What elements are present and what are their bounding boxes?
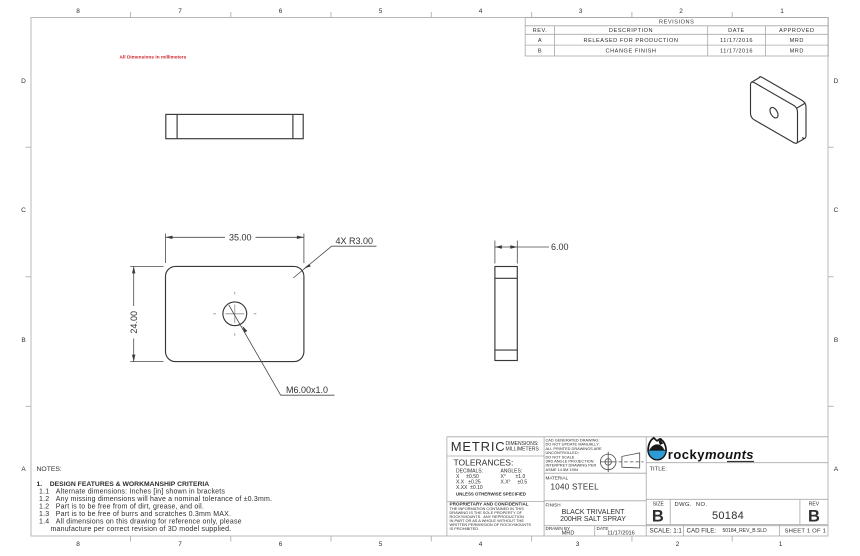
svg-text:A: A <box>21 466 26 473</box>
svg-text:REV.: REV. <box>533 28 548 34</box>
svg-text:50184_REV_B.SLD: 50184_REV_B.SLD <box>723 528 768 534</box>
svg-text:X.XX ±0.10: X.XX ±0.10 <box>456 485 483 491</box>
svg-text:METRIC: METRIC <box>451 439 506 454</box>
svg-text:4: 4 <box>479 8 483 15</box>
svg-text:1.3 Part is to be free of bu: 1.3 Part is to be free of burrs and scra… <box>39 511 231 518</box>
svg-text:REVISIONS: REVISIONS <box>659 20 694 26</box>
svg-text:DATE: DATE <box>728 28 745 34</box>
svg-text:DWG. NO.: DWG. NO. <box>675 502 708 508</box>
svg-text:3: 3 <box>576 541 580 548</box>
svg-text:RELEASED FOR PRODUCTION: RELEASED FOR PRODUCTION <box>583 38 678 44</box>
svg-text:5: 5 <box>379 541 383 548</box>
svg-text:24.00: 24.00 <box>129 311 139 334</box>
svg-text:1: 1 <box>780 8 784 15</box>
svg-text:2: 2 <box>679 8 683 15</box>
svg-text:ASME 14.5M 1994: ASME 14.5M 1994 <box>546 467 579 472</box>
svg-text:TOLERANCES:: TOLERANCES: <box>454 458 514 468</box>
svg-text:manufacture per correct revisi: manufacture per correct revision of 3D m… <box>51 526 232 533</box>
svg-text:MATERIAL: MATERIAL <box>546 476 569 481</box>
svg-text:7: 7 <box>178 8 182 15</box>
svg-text:MRD: MRD <box>562 531 575 537</box>
svg-text:D: D <box>21 78 26 85</box>
svg-text:A: A <box>538 38 542 44</box>
svg-text:B: B <box>21 337 25 344</box>
svg-text:4: 4 <box>479 541 483 548</box>
svg-text:1.1 Alternate dimensions: In: 1.1 Alternate dimensions: Inches [in] sh… <box>39 489 225 496</box>
svg-text:All Dimensions in millimeters: All Dimensions in millimeters <box>120 54 187 59</box>
svg-text:CHANGE FINISH: CHANGE FINISH <box>606 49 657 55</box>
svg-text:1.2 Any missing dimensions w: 1.2 Any missing dimensions will have a n… <box>39 496 272 503</box>
svg-text:B: B <box>538 49 542 55</box>
svg-text:X.X° ±0.5: X.X° ±0.5 <box>501 480 528 486</box>
svg-text:1: 1 <box>779 541 783 548</box>
svg-text:IS PROHIBITED.: IS PROHIBITED. <box>450 526 480 531</box>
svg-text:1.2 Part is to be free from: 1.2 Part is to be free from of dirt, gre… <box>39 504 204 511</box>
svg-text:B: B <box>834 337 838 344</box>
svg-text:rocky: rocky <box>668 447 705 462</box>
svg-text:UNLESS OTHERWISE SPECIFIED: UNLESS OTHERWISE SPECIFIED <box>456 492 526 497</box>
svg-text:2: 2 <box>676 541 680 548</box>
svg-text:1. DESIGN FEATURES & WORKMA: 1. DESIGN FEATURES & WORKMANSHIP CRITERI… <box>37 481 210 488</box>
svg-text:FINISH: FINISH <box>546 503 561 508</box>
svg-text:NOTES:: NOTES: <box>37 466 62 473</box>
svg-text:mounts: mounts <box>705 447 754 462</box>
svg-text:35.00: 35.00 <box>229 232 252 242</box>
svg-text:200HR SALT SPRAY: 200HR SALT SPRAY <box>560 516 626 523</box>
svg-text:11/17/2016: 11/17/2016 <box>607 531 635 537</box>
svg-text:8: 8 <box>76 8 80 15</box>
svg-text:BLACK TRIVALENT: BLACK TRIVALENT <box>562 509 625 516</box>
svg-text:50184: 50184 <box>712 510 744 522</box>
svg-text:3: 3 <box>579 8 583 15</box>
svg-text:8: 8 <box>76 541 80 548</box>
svg-text:APPROVED: APPROVED <box>779 28 815 34</box>
svg-text:6: 6 <box>279 541 283 548</box>
svg-text:C: C <box>21 207 26 214</box>
svg-text:4X R3.00: 4X R3.00 <box>336 236 374 246</box>
svg-text:11/17/2016: 11/17/2016 <box>720 49 753 55</box>
svg-text:1.4 All dimensions on this d: 1.4 All dimensions on this drawing for r… <box>39 519 242 526</box>
svg-text:6.00: 6.00 <box>551 242 569 252</box>
svg-text:D: D <box>834 78 839 85</box>
svg-text:CAD FILE:: CAD FILE: <box>687 528 717 535</box>
svg-text:6: 6 <box>279 8 283 15</box>
svg-text:DESCRIPTION: DESCRIPTION <box>609 28 653 34</box>
svg-text:M6.00x1.0: M6.00x1.0 <box>286 385 328 395</box>
svg-text:SCALE: 1:1: SCALE: 1:1 <box>650 528 683 535</box>
svg-text:7: 7 <box>178 541 182 548</box>
svg-text:MILLIMETERS: MILLIMETERS <box>506 447 540 453</box>
svg-text:B: B <box>652 507 664 525</box>
svg-text:B: B <box>808 507 820 525</box>
svg-text:5: 5 <box>379 8 383 15</box>
svg-text:1040 STEEL: 1040 STEEL <box>551 482 600 491</box>
svg-text:A: A <box>834 466 839 473</box>
svg-text:11/17/2016: 11/17/2016 <box>720 38 753 44</box>
svg-text:MRD: MRD <box>790 38 804 44</box>
svg-text:SHEET 1 OF 1: SHEET 1 OF 1 <box>785 529 827 535</box>
svg-text:C: C <box>834 207 839 214</box>
svg-text:TITLE:: TITLE: <box>650 467 668 473</box>
svg-text:MRD: MRD <box>790 49 804 55</box>
